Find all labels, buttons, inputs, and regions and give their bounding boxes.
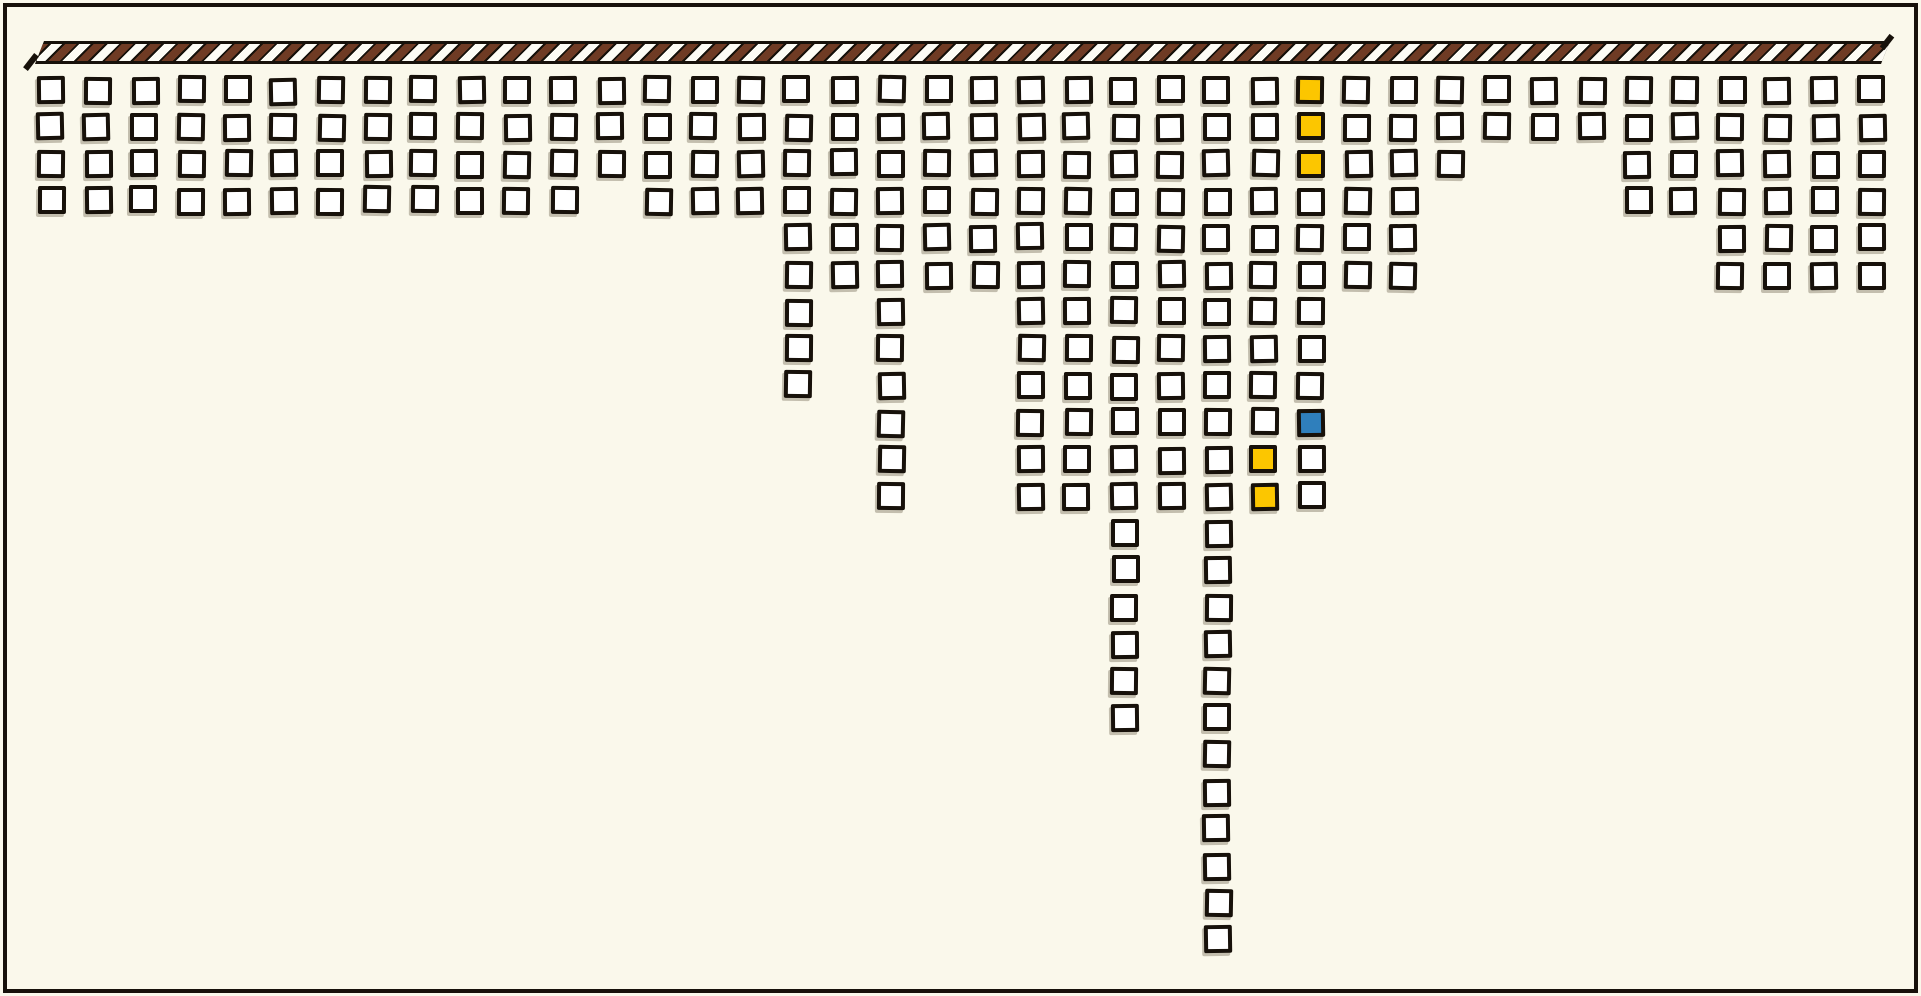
grid-square (1625, 114, 1653, 142)
grid-square (1205, 446, 1233, 474)
grid-square (924, 261, 952, 289)
grid-square (223, 188, 251, 216)
grid-square (783, 186, 811, 214)
grid-square (502, 187, 530, 215)
grid-square (1064, 372, 1092, 400)
grid-square (1018, 334, 1046, 362)
grid-square (1204, 556, 1232, 584)
highlight-square-yellow (1251, 483, 1279, 511)
grid-square (970, 76, 998, 104)
grid-square (1064, 408, 1092, 436)
grid-square (1202, 814, 1230, 842)
grid-square (1437, 149, 1465, 177)
grid-square (269, 187, 297, 215)
grid-square (132, 77, 160, 105)
grid-square (1345, 150, 1374, 179)
grid-square (1625, 186, 1653, 214)
grid-square (549, 75, 577, 103)
grid-square (1623, 151, 1651, 179)
grid-square (1670, 150, 1698, 178)
grid-square (1018, 112, 1047, 141)
grid-square (830, 148, 858, 176)
grid-square (1111, 631, 1139, 659)
grid-square (783, 149, 811, 177)
grid-square (737, 75, 765, 103)
grid-square (85, 149, 113, 177)
grid-square (1857, 188, 1885, 216)
grid-square (1671, 76, 1699, 104)
grid-square (924, 75, 952, 103)
grid-square (1156, 334, 1184, 362)
grid-square (1249, 186, 1277, 214)
grid-square (129, 185, 157, 213)
grid-square (598, 77, 626, 105)
chart-canvas (0, 0, 1921, 996)
grid-square (1249, 261, 1277, 289)
grid-square (596, 112, 624, 140)
grid-square (1298, 334, 1326, 362)
grid-square (1205, 519, 1233, 547)
grid-square (1205, 888, 1233, 916)
grid-square (876, 410, 905, 439)
grid-square (829, 188, 857, 216)
grid-square (1298, 445, 1326, 473)
grid-square (1110, 150, 1138, 178)
grid-square (1531, 113, 1559, 141)
grid-square (689, 112, 717, 140)
grid-square (1158, 297, 1186, 325)
grid-square (1158, 447, 1186, 475)
grid-square (876, 333, 904, 361)
grid-square (549, 113, 577, 141)
grid-square (365, 149, 393, 177)
grid-square (458, 75, 486, 103)
grid-square (785, 261, 813, 289)
grid-square (225, 149, 253, 177)
grid-square (1017, 76, 1045, 104)
grid-square (922, 112, 950, 140)
grid-square (1203, 853, 1231, 881)
grid-square (1250, 77, 1278, 105)
grid-square (922, 222, 951, 251)
grid-square (1157, 188, 1185, 216)
grid-square (1110, 594, 1138, 622)
grid-square (644, 151, 672, 179)
highlight-square-blue (1296, 409, 1324, 437)
grid-square (642, 74, 670, 102)
grid-square (1295, 223, 1323, 251)
grid-square (878, 75, 907, 104)
grid-square (1202, 778, 1230, 806)
grid-square (830, 260, 858, 288)
grid-square (876, 187, 904, 215)
grid-square (1483, 111, 1511, 139)
grid-square (1204, 188, 1232, 216)
grid-square (1390, 76, 1418, 104)
grid-square (1436, 76, 1464, 104)
grid-square (1297, 297, 1325, 325)
grid-square (736, 187, 764, 215)
grid-square (1110, 481, 1139, 510)
grid-square (1016, 408, 1044, 436)
grid-square (409, 112, 437, 140)
grid-square (1389, 224, 1417, 252)
grid-square (1016, 483, 1044, 511)
grid-square (1110, 373, 1138, 401)
grid-square (1111, 188, 1139, 216)
grid-square (1203, 703, 1231, 731)
grid-square (1202, 666, 1231, 695)
grid-square (1202, 224, 1230, 252)
grid-square (1017, 371, 1045, 399)
grid-square (1811, 186, 1839, 214)
grid-square (456, 150, 484, 178)
grid-square (1202, 148, 1231, 177)
grid-square (503, 150, 531, 178)
grid-square (1063, 259, 1091, 287)
grid-square (364, 76, 392, 104)
grid-square (1857, 75, 1885, 103)
grid-square (409, 75, 437, 103)
grid-square (1063, 445, 1091, 473)
grid-square (317, 113, 345, 141)
grid-square (1809, 76, 1837, 104)
grid-square (1669, 186, 1697, 214)
grid-square (1251, 113, 1279, 141)
grid-square (644, 113, 672, 141)
grid-square (1017, 297, 1046, 326)
grid-square (130, 113, 158, 141)
grid-square (923, 149, 951, 177)
grid-square (503, 114, 531, 142)
grid-square (1718, 188, 1746, 216)
grid-square (691, 150, 719, 178)
grid-square (1064, 76, 1092, 104)
highlight-square-yellow (1297, 150, 1325, 178)
grid-square (1112, 555, 1140, 583)
grid-square (36, 149, 64, 177)
grid-square (831, 76, 859, 104)
grid-square (130, 149, 158, 177)
grid-square (1202, 76, 1230, 104)
grid-square (1297, 188, 1325, 216)
grid-square (1858, 113, 1886, 141)
grid-square (877, 445, 905, 473)
grid-square (1716, 149, 1744, 177)
grid-square (1111, 261, 1139, 289)
grid-square (1251, 225, 1279, 253)
grid-square (1763, 150, 1791, 178)
grid-square (1204, 925, 1232, 953)
grid-square (1436, 112, 1464, 140)
grid-square (1810, 262, 1838, 290)
grid-square (1343, 187, 1372, 216)
grid-square (1111, 336, 1139, 364)
grid-square (224, 75, 252, 103)
grid-square (1670, 112, 1699, 141)
grid-square (1063, 151, 1091, 179)
grid-square (1762, 262, 1790, 290)
grid-square (1156, 224, 1185, 253)
grid-square (1063, 297, 1091, 325)
grid-square (1297, 481, 1325, 509)
grid-square (737, 150, 766, 179)
grid-square (1109, 76, 1137, 104)
grid-square (1062, 112, 1091, 141)
grid-square (877, 482, 905, 510)
grid-square (878, 371, 906, 399)
grid-square (1578, 112, 1606, 140)
grid-square (317, 76, 345, 104)
grid-square (1017, 150, 1045, 178)
grid-square (1062, 483, 1090, 511)
grid-square (38, 186, 66, 214)
highlight-square-yellow (1297, 112, 1325, 140)
grid-square (1110, 445, 1138, 473)
grid-square (1811, 151, 1839, 179)
grid-square (1765, 224, 1793, 252)
grid-square (782, 75, 810, 103)
grid-square (1624, 75, 1652, 103)
grid-square (876, 224, 904, 252)
grid-square (971, 187, 999, 215)
grid-square (1249, 371, 1277, 399)
grid-square (1716, 262, 1744, 290)
grid-square (1111, 519, 1139, 547)
grid-square (316, 149, 344, 177)
grid-square (1716, 113, 1744, 141)
grid-square (1156, 114, 1184, 142)
grid-square (550, 149, 578, 177)
grid-square (1156, 151, 1184, 179)
grid-square (178, 150, 206, 178)
grid-square (970, 149, 999, 178)
grid-square (362, 185, 391, 214)
grid-square (1203, 298, 1231, 326)
grid-square (1858, 262, 1886, 290)
grid-square (1157, 372, 1185, 400)
grid-square (1110, 667, 1138, 695)
grid-square (269, 148, 297, 176)
grid-square (1389, 262, 1418, 291)
grid-square (598, 149, 626, 177)
grid-square (1112, 114, 1140, 142)
grid-square (1204, 482, 1233, 511)
grid-square (1203, 370, 1231, 398)
grid-square (1763, 77, 1791, 105)
grid-square (1342, 76, 1370, 104)
grid-square (82, 112, 111, 141)
grid-square (1017, 445, 1045, 473)
grid-square (1158, 260, 1186, 288)
grid-square (785, 334, 813, 362)
highlight-square-yellow (1249, 445, 1277, 473)
grid-square (877, 298, 905, 326)
grid-square (1249, 296, 1277, 324)
grid-square (1203, 113, 1231, 141)
grid-square (1158, 482, 1186, 510)
grid-square (1718, 225, 1746, 253)
grid-square (1811, 114, 1840, 143)
grid-square (1858, 223, 1886, 251)
rope-stripes (37, 44, 1888, 61)
grid-square (363, 113, 391, 141)
grid-square (1065, 223, 1093, 251)
grid-square (691, 75, 719, 103)
grid-square (831, 223, 859, 251)
grid-square (923, 186, 951, 214)
grid-square (1390, 148, 1419, 177)
grid-square (1205, 262, 1233, 290)
grid-square (738, 112, 766, 140)
grid-square (1578, 77, 1606, 105)
grid-square (176, 113, 204, 141)
grid-square (37, 76, 65, 104)
grid-square (84, 185, 112, 213)
grid-square (177, 75, 205, 103)
grid-square (551, 186, 579, 214)
grid-square (177, 188, 205, 216)
grid-square (1202, 740, 1231, 769)
grid-square (969, 112, 997, 140)
grid-square (1203, 630, 1231, 658)
grid-square (1250, 335, 1279, 364)
grid-square (969, 225, 997, 253)
grid-square (1719, 76, 1747, 104)
grid-square (1158, 408, 1186, 436)
highlight-square-yellow (1295, 76, 1323, 104)
grid-square (1391, 187, 1419, 215)
grid-square (1156, 75, 1184, 103)
rope-bar (35, 41, 1890, 64)
grid-square (1111, 703, 1139, 731)
grid-square (1342, 223, 1370, 251)
grid-square (84, 77, 112, 105)
grid-square (1204, 408, 1232, 436)
grid-square (645, 187, 673, 215)
grid-square (1763, 114, 1791, 142)
grid-square (223, 114, 251, 142)
grid-square (877, 149, 905, 177)
grid-square (1065, 334, 1093, 362)
grid-square (1810, 225, 1838, 253)
grid-square (411, 185, 439, 213)
grid-square (831, 113, 859, 141)
grid-square (456, 112, 484, 140)
grid-square (690, 187, 719, 216)
grid-square (785, 114, 814, 143)
grid-square (784, 222, 812, 250)
grid-square (1298, 261, 1326, 289)
grid-square (877, 112, 905, 140)
grid-square (876, 260, 904, 288)
grid-square (316, 188, 344, 216)
grid-square (1111, 407, 1139, 435)
grid-square (1483, 75, 1511, 103)
grid-square (1389, 113, 1417, 141)
grid-square (1344, 261, 1372, 289)
grid-square (1763, 187, 1791, 215)
grid-square (1203, 335, 1231, 363)
grid-square (785, 299, 813, 327)
grid-square (1251, 149, 1280, 178)
grid-square (456, 187, 484, 215)
grid-square (1296, 371, 1324, 399)
grid-square (269, 112, 297, 140)
grid-square (1205, 594, 1233, 622)
grid-square (1017, 187, 1045, 215)
grid-square (36, 112, 65, 141)
grid-square (1110, 296, 1138, 324)
grid-square (1343, 114, 1371, 142)
grid-square (269, 77, 298, 106)
grid-square (1530, 77, 1558, 105)
grid-square (1110, 223, 1138, 251)
grid-square (971, 261, 999, 289)
grid-square (783, 370, 811, 398)
grid-square (503, 76, 531, 104)
grid-square (409, 149, 437, 177)
grid-square (1858, 150, 1886, 178)
grid-square (1017, 261, 1045, 289)
grid-square (1064, 186, 1092, 214)
grid-square (1251, 407, 1279, 435)
grid-square (1016, 222, 1044, 250)
